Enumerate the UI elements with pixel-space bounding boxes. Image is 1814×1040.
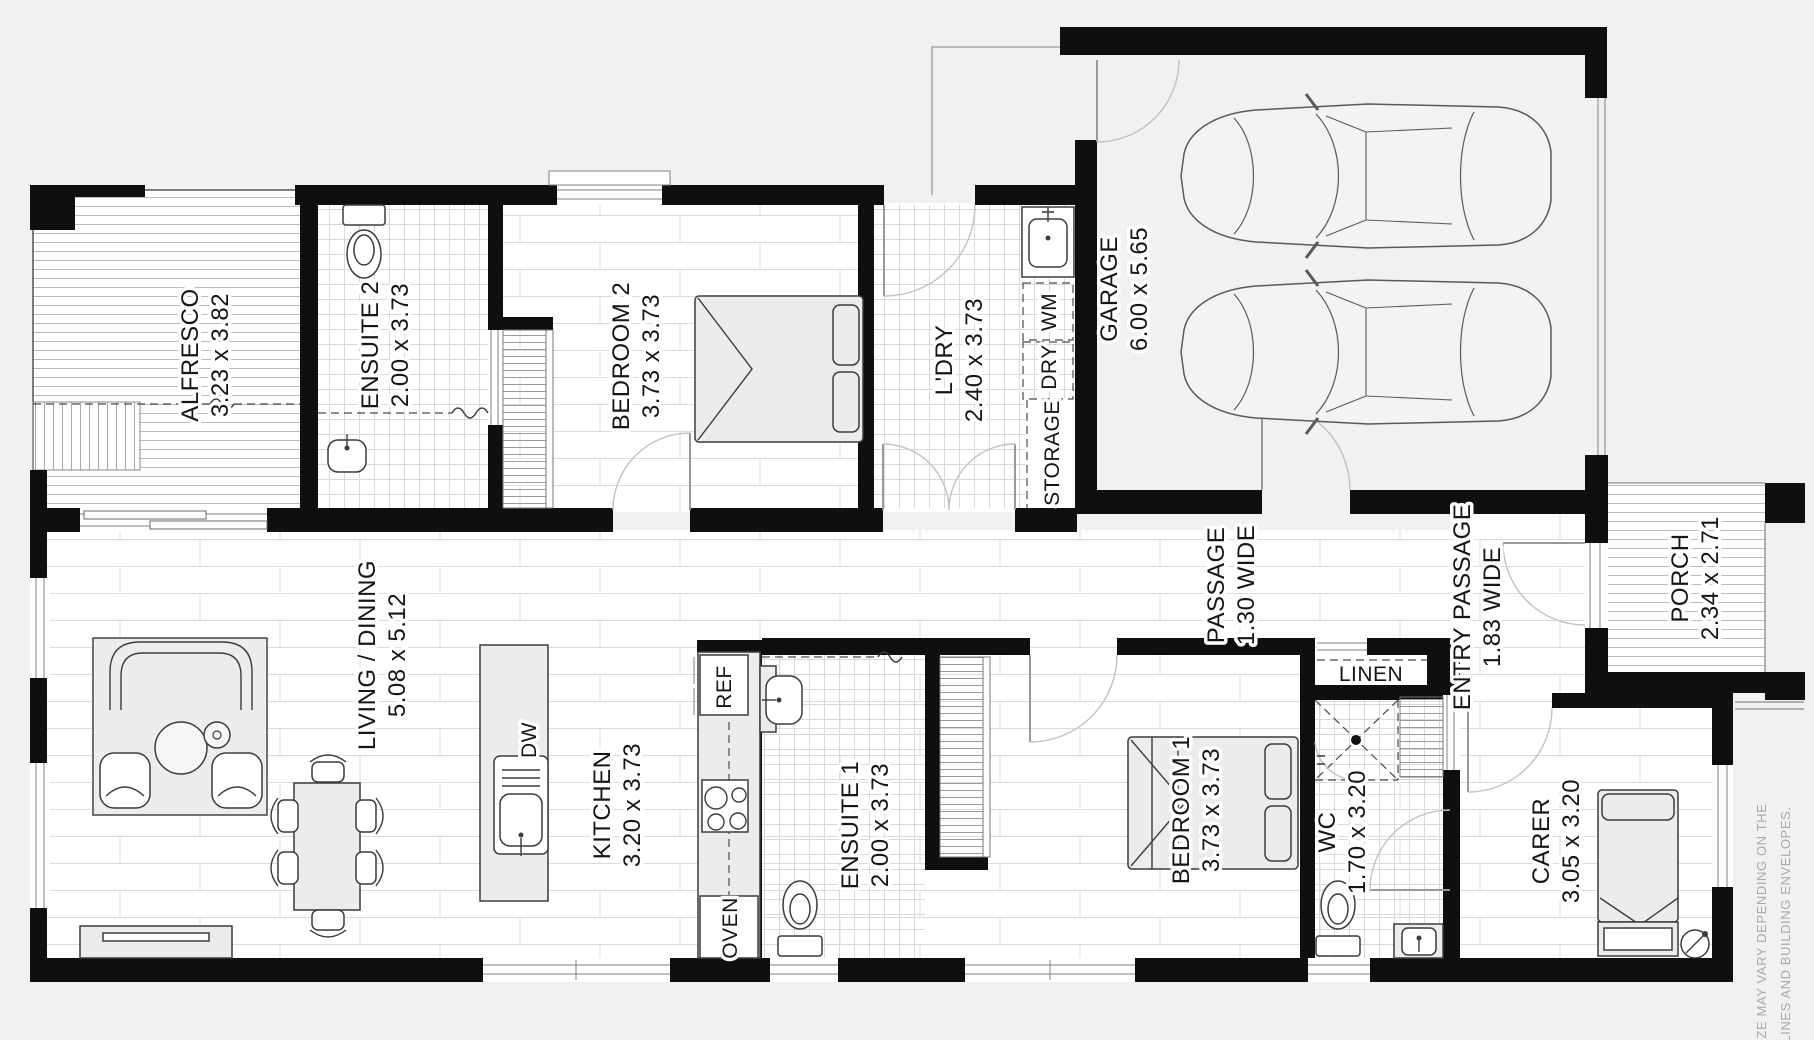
floor-plan-drawing: ALFRESCO 3.23 x 3.82 ENSUITE 2 2.00 x 3.… [0,0,1814,1040]
wc-name: WC [1314,812,1341,853]
wall-ensuite2-left [300,185,318,508]
entry-name: ENTRY PASSAGE [1449,504,1476,711]
wc-basin [1394,924,1443,958]
wall-top-1 [295,185,557,205]
car-2 [1181,270,1551,434]
armchair-left [100,753,150,808]
porch-dims: 2.34 x 2.71 [1697,516,1724,640]
wc-shelves [1400,697,1443,777]
linen-label: LINEN [1339,663,1403,686]
ldry-name: L'DRY [931,325,958,396]
dw-label: DW [518,722,541,758]
passage-name: PASSAGE [1203,527,1230,643]
bedroom2-dims: 3.73 x 3.73 [638,294,665,418]
bedroom1-robe [940,657,990,857]
ensuite1-dims: 2.00 x 3.73 [867,763,894,887]
car-1 [1181,94,1551,258]
tv-unit [80,926,232,958]
alfresco-dims: 3.23 x 3.82 [207,293,234,417]
side-landing-outline [932,47,1062,195]
living-dims: 5.08 x 5.12 [384,593,411,717]
wall-garage-left [1075,140,1097,514]
label-dry: DRY [1038,344,1061,389]
laundry-tub [1022,207,1074,277]
bedroom2-robe [503,330,553,508]
oven-label: OVEN [719,897,742,959]
living-name: LIVING / DINING [354,560,381,750]
porch-pillar-tr [1765,483,1805,523]
kitchen-bottom-window [483,958,670,982]
linen-door [1317,638,1367,655]
living-left-window-1 [30,578,50,678]
kitchen-dims: 3.20 x 3.73 [619,743,646,867]
bedroom1-dims: 3.73 x 3.73 [1198,748,1225,872]
carer-name: CARER [1528,798,1555,885]
bedroom1-bottom-window [965,958,1135,982]
bedroom2-window [549,171,670,205]
passage-dims: 1.30 WIDE [1233,525,1260,646]
garage-name: GARAGE [1096,236,1123,342]
bedroom2-bed [695,296,863,442]
label-dw: DW [518,722,541,758]
alfresco-sliding-door [80,508,267,532]
wall-top-2 [662,185,884,205]
disclaimer-line1: SIZE MAY VARY DEPENDING ON THE [1754,804,1769,1040]
ensuite2-toilet [343,205,385,278]
carer-corner-symbol [1681,930,1709,958]
wall-bottom-right [1370,958,1733,982]
ensuite1-bottom-window [770,958,838,982]
carer-bed [1598,790,1678,956]
wall-hall-carer [1443,770,1460,960]
wall-porch-bottom [1608,672,1765,693]
dry-label: DRY [1038,344,1061,389]
kitchen-island [480,645,548,901]
porch-name: PORCH [1667,533,1694,622]
carer-right-window [1712,765,1733,887]
kitchen-name: KITCHEN [589,751,616,860]
armchair-right [212,753,262,808]
ensuite1-name: ENSUITE 1 [837,761,864,890]
ldry-dims: 2.40 x 3.73 [961,298,988,422]
alfresco-name: ALFRESCO [177,288,204,421]
wm-label: WM [1038,293,1061,331]
bedroom1-name: BEDROOM 1 [1168,736,1195,885]
porch-pillar-br [1765,672,1805,700]
entry-dims: 1.83 WIDE [1479,547,1506,668]
storage-label: STORAGE [1041,400,1064,506]
living-left-window-2 [30,763,50,908]
ref-label: REF [713,665,736,709]
wall-top-3 [975,185,1085,205]
bedroom2-name: BEDROOM 2 [608,282,635,431]
carer-dims: 3.05 x 3.20 [1558,779,1585,903]
alfresco-step-deck [33,402,140,470]
disclaimer-line2: ELINES AND BUILDING ENVELOPES. [1778,806,1793,1040]
label-ref: REF [713,665,736,709]
wall-garage-top [1060,27,1607,55]
floor-plan-page: ALFRESCO 3.23 x 3.82 ENSUITE 2 2.00 x 3.… [0,0,1814,1040]
garage-dims: 6.00 x 5.65 [1126,227,1153,351]
ensuite2-name: ENSUITE 2 [357,281,384,410]
label-oven: OVEN [719,897,742,959]
porch-steps [1735,702,1804,709]
garage-roller-door [1598,98,1605,455]
ensuite2-dims: 2.00 x 3.73 [387,283,414,407]
label-storage: STORAGE [1041,400,1064,506]
label-wm: WM [1038,293,1061,331]
wc-bottom-window [1308,958,1370,982]
wc-dims: 1.70 x 3.20 [1344,770,1371,894]
